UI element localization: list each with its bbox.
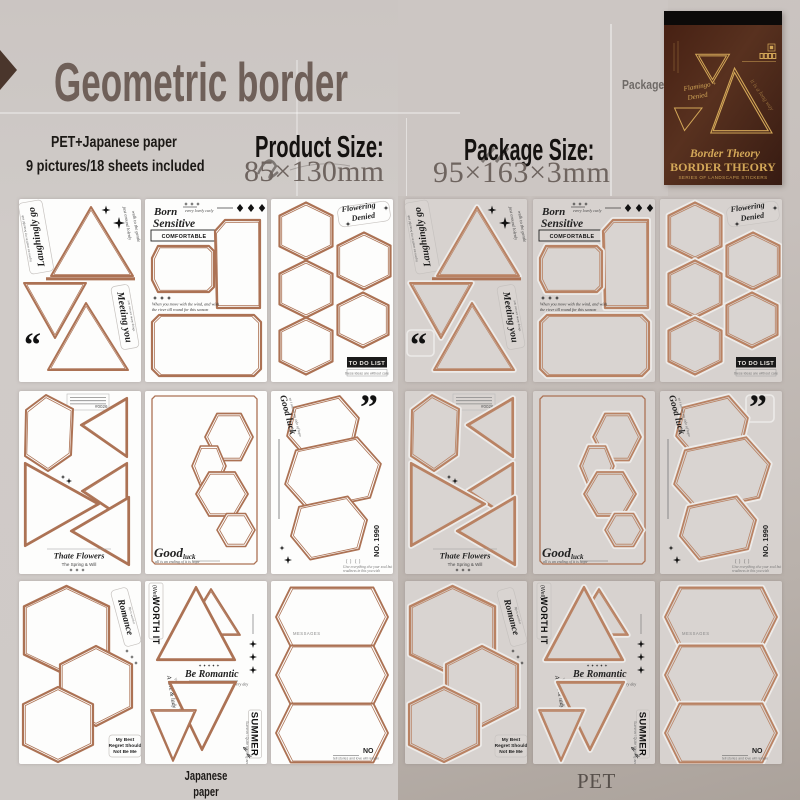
svg-text:NO: NO [363, 748, 374, 755]
svg-text:The Spring & Will: The Spring & Will [62, 562, 97, 567]
svg-text:COMFORTABLE: COMFORTABLE [550, 234, 595, 240]
svg-text:TO DO LIST: TO DO LIST [349, 361, 385, 367]
svg-text:Born: Born [153, 206, 177, 218]
svg-text:all is an ending of it is hope: all is an ending of it is hope [155, 559, 200, 564]
svg-text:〔 〕〔 〕: 〔 〕〔 〕 [343, 559, 363, 564]
svg-text:readiness in this you wish: readiness in this you wish [732, 569, 769, 573]
svg-text:NO: NO [752, 748, 763, 755]
svg-text:Not Be Me: Not Be Me [499, 749, 523, 755]
svg-text:#0026: #0026 [95, 404, 108, 409]
svg-text:Sensitive: Sensitive [541, 218, 583, 230]
svg-text:the river till round for this: the river till round for this season [152, 307, 208, 312]
svg-text:Regret Should: Regret Should [109, 743, 141, 749]
svg-text:all is an ending of it is hope: all is an ending of it is hope [543, 559, 588, 564]
svg-text:”: ” [360, 391, 378, 427]
svg-text:these ideas are without care: these ideas are without care [345, 372, 389, 376]
svg-text:✦ ✦ ✦ ✦ ✦: ✦ ✦ ✦ ✦ ✦ [198, 663, 220, 668]
svg-text:these ideas are without care: these ideas are without care [734, 372, 778, 376]
svg-text:〔 〕〔 〕: 〔 〕〔 〕 [732, 559, 752, 564]
svg-text:NO. 1990: NO. 1990 [372, 525, 381, 557]
svg-text:Be Romantic: Be Romantic [184, 669, 239, 680]
svg-text:the river till round for this: the river till round for this season [540, 307, 596, 312]
svg-text:Be Romantic: Be Romantic [572, 669, 627, 680]
svg-text:Thate Flowers: Thate Flowers [440, 551, 491, 561]
svg-text:MESSAGES: MESSAGES [682, 631, 710, 636]
svg-text:readiness in this you wish: readiness in this you wish [343, 569, 380, 573]
svg-text:tell stories and love will rem: tell stories and love will remain [333, 757, 379, 761]
svg-text:every lovely curly: every lovely curly [185, 208, 214, 213]
svg-text:SERIES OF LANDSCAPE STICKERS: SERIES OF LANDSCAPE STICKERS [678, 175, 767, 180]
svg-text:”: ” [749, 391, 767, 427]
svg-text:My Best: My Best [116, 737, 135, 743]
svg-text:WORTH IT: WORTH IT [539, 597, 549, 645]
svg-text:Born: Born [541, 206, 565, 218]
svg-text:Regret Should: Regret Should [495, 743, 527, 749]
svg-text:Good: Good [154, 545, 183, 560]
svg-text:NO. 1990: NO. 1990 [761, 525, 770, 557]
svg-text:“: “ [410, 327, 427, 364]
svg-text:SUMMER: SUMMER [249, 712, 260, 757]
svg-text:tell stories and love will rem: tell stories and love will remain [722, 757, 768, 761]
svg-text:WORTH IT: WORTH IT [151, 597, 161, 645]
svg-text:BORDER THEORY: BORDER THEORY [670, 160, 776, 174]
svg-text:Not Be Me: Not Be Me [113, 749, 137, 755]
svg-text:COMFORTABLE: COMFORTABLE [162, 234, 207, 240]
svg-text:Thate Flowers: Thate Flowers [54, 551, 105, 561]
svg-text:Good: Good [542, 545, 571, 560]
svg-text:every lovely curly: every lovely curly [573, 208, 602, 213]
svg-text:SUMMER: SUMMER [637, 712, 648, 757]
svg-text:TO DO LIST: TO DO LIST [738, 361, 774, 367]
svg-text:The Spring & Will: The Spring & Will [448, 562, 483, 567]
svg-text:Border Theory: Border Theory [689, 148, 761, 160]
svg-text:“: “ [24, 327, 41, 364]
svg-text:My Best: My Best [502, 737, 521, 743]
svg-text:✦ ✦ ✦ ✦ ✦: ✦ ✦ ✦ ✦ ✦ [586, 663, 608, 668]
svg-text:MESSAGES: MESSAGES [293, 631, 321, 636]
svg-text:Sensitive: Sensitive [153, 218, 195, 230]
